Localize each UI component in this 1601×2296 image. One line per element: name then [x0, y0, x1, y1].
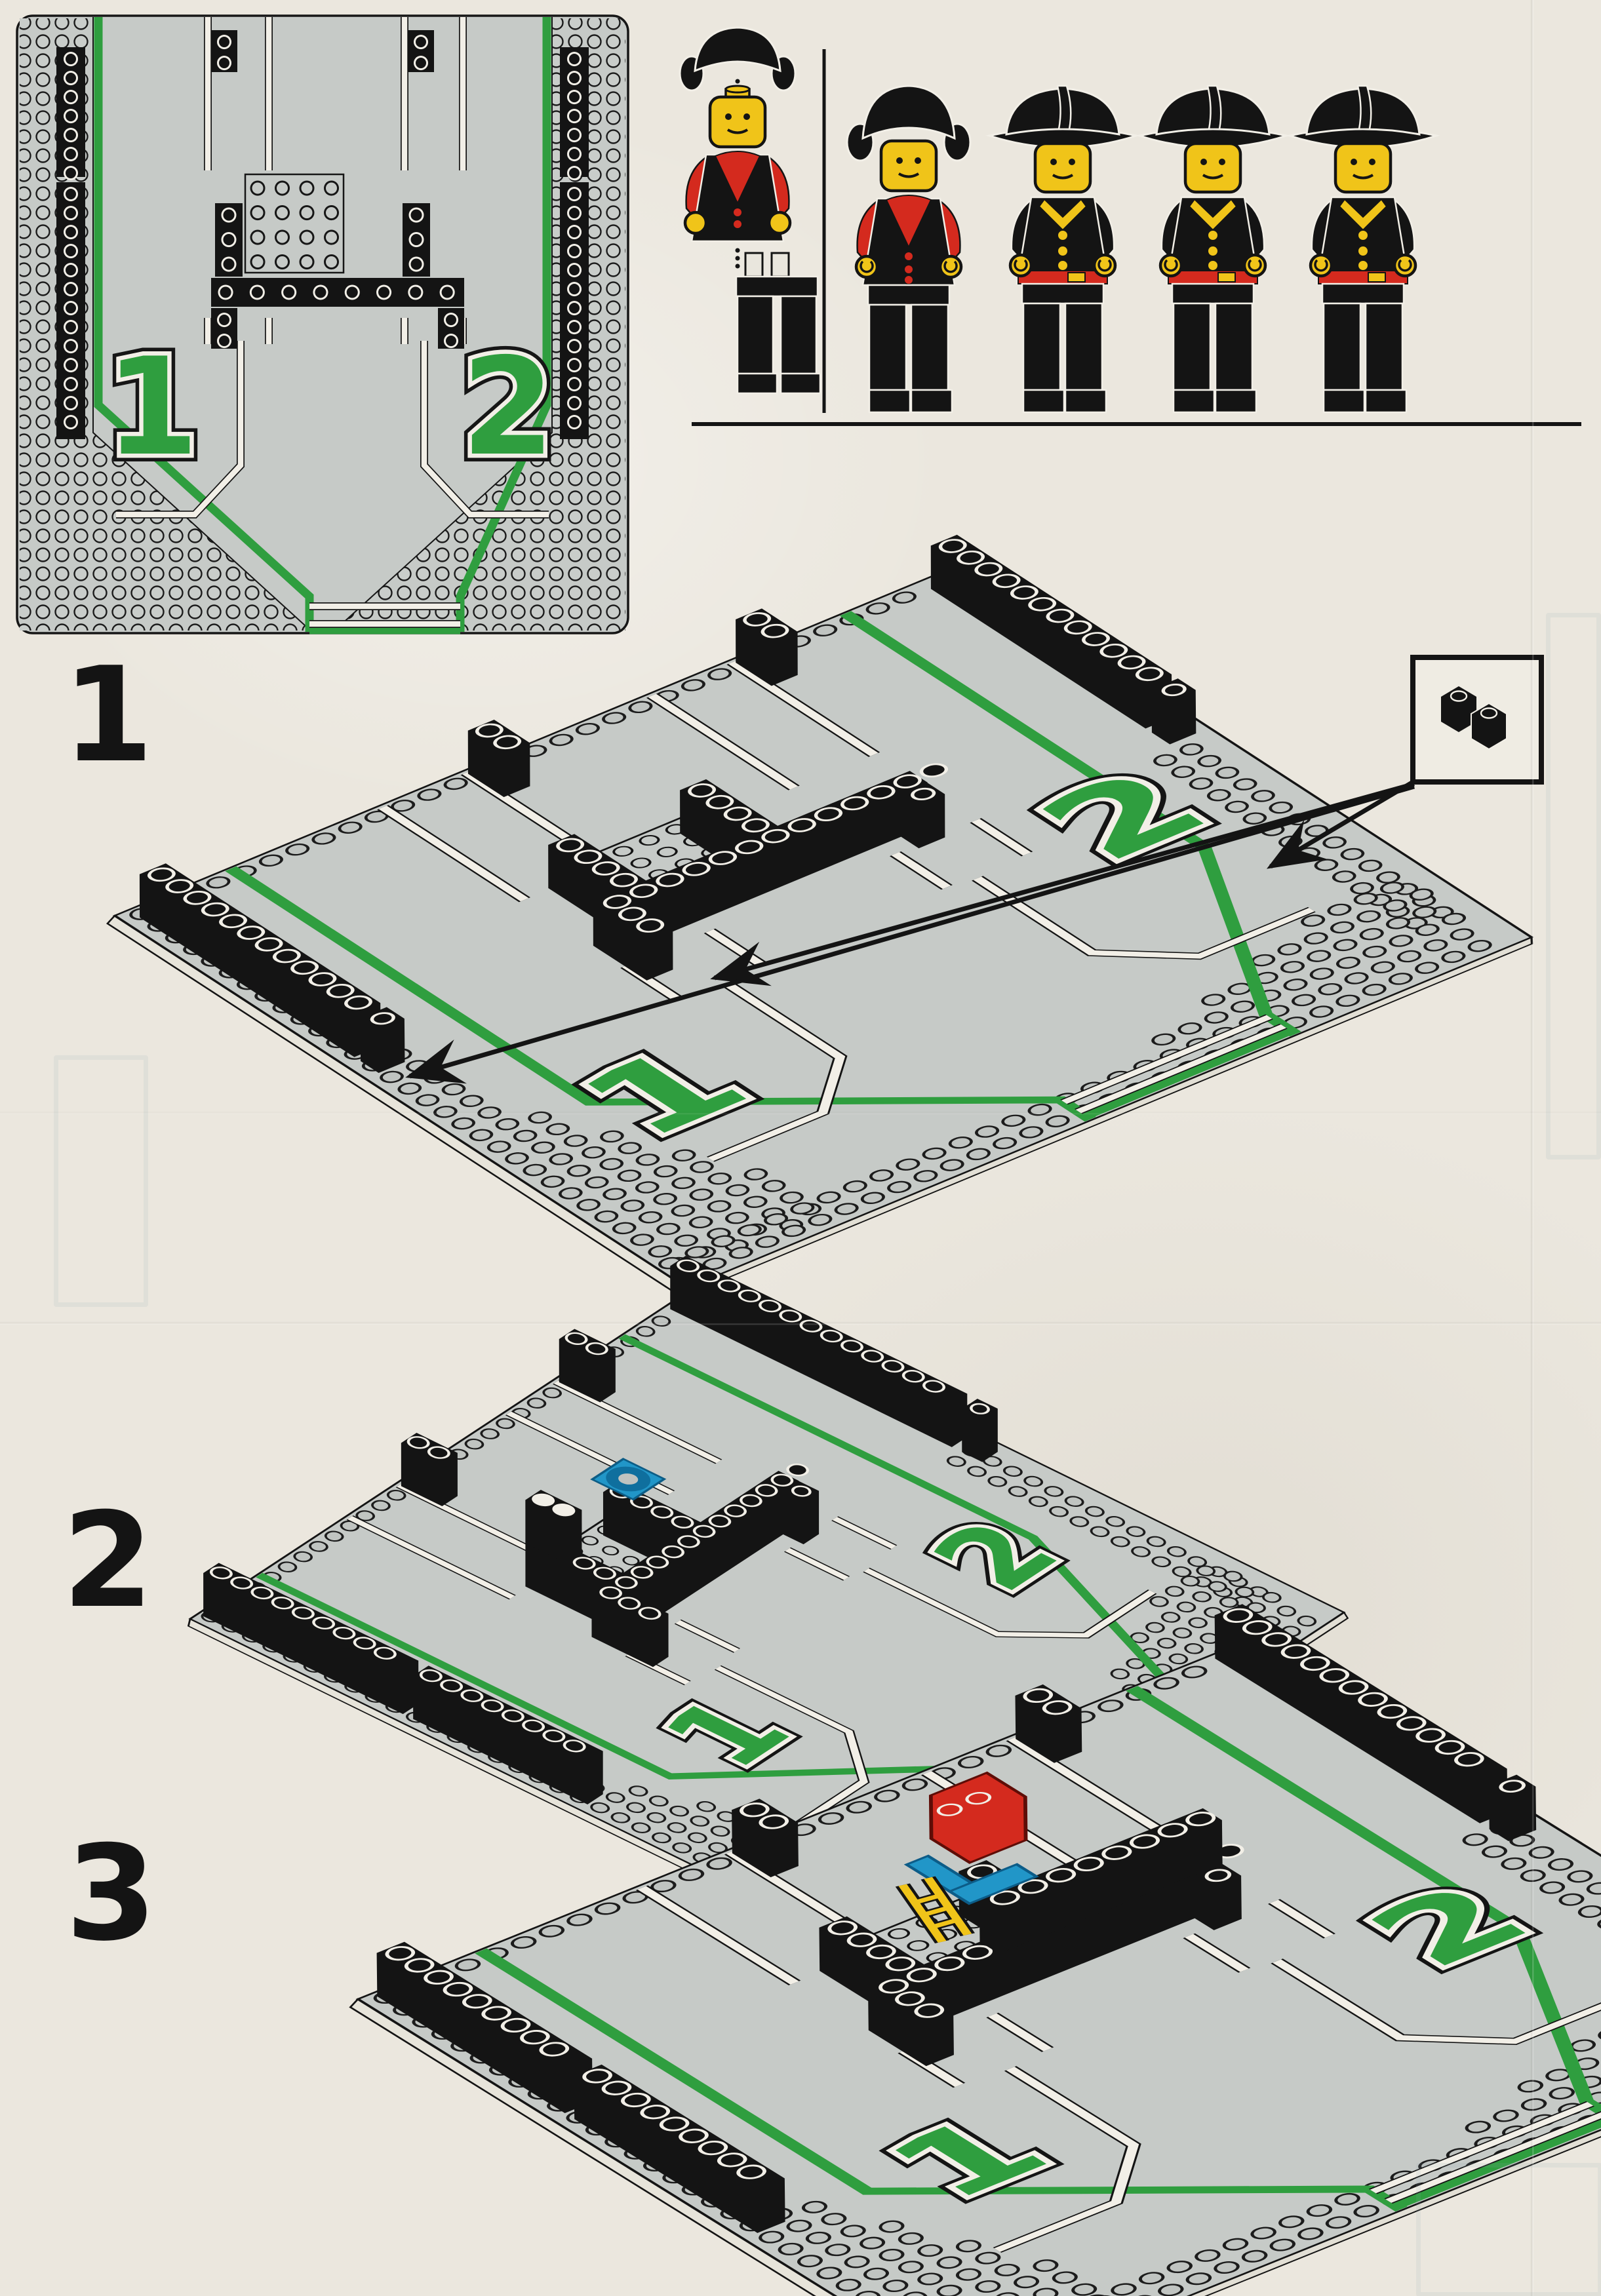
fireman-figure-1: [989, 86, 1136, 412]
step-1-plate: 1 1 2 2: [67, 530, 1565, 1297]
female-figure-exploded: [680, 28, 820, 393]
instruction-page: 1 1 2 2: [0, 0, 1601, 2296]
head: [710, 97, 765, 147]
plan-bay1-number: 1: [106, 330, 199, 486]
figure-row: [680, 28, 1581, 424]
female-figure-assembled: [847, 86, 970, 412]
step-3-label: 3: [66, 1818, 157, 1970]
legs-piece: [736, 277, 818, 296]
hair-piece: [695, 28, 780, 71]
step-1-label: 1: [62, 639, 153, 792]
page-artwork: 1 1 2 2: [0, 0, 1601, 2296]
plan-bay2-number: 2: [462, 330, 555, 486]
fireman-figure-2: [1139, 86, 1286, 412]
brick-callout-box: [1413, 657, 1541, 782]
fireman-figure-3: [1290, 86, 1436, 412]
plan-diagram: 1 1 2 2: [17, 16, 628, 633]
step-2-label: 2: [62, 1485, 153, 1637]
step-1-scene: 1 1 2 2: [67, 530, 1565, 1297]
